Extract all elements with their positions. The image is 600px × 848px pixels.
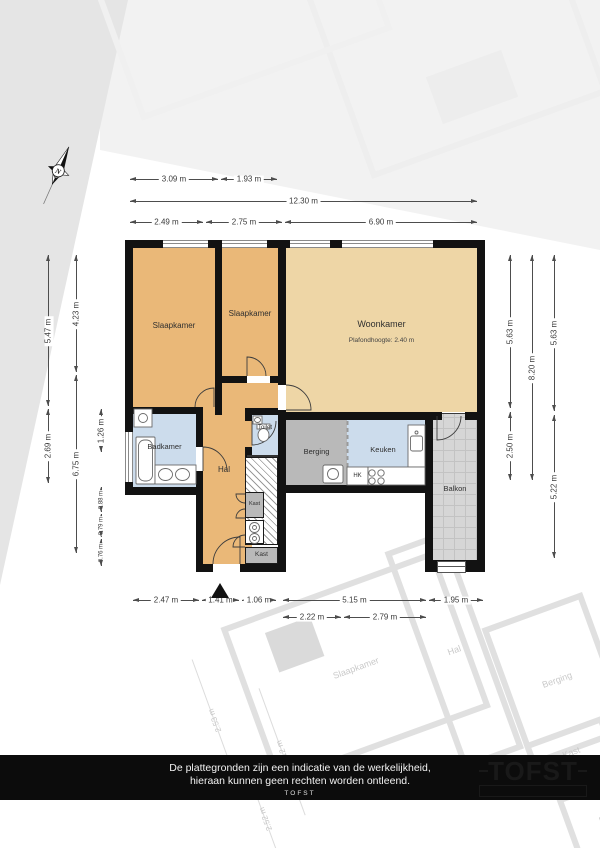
dim-right: 5.22 m — [554, 415, 555, 558]
label-balkon: Balkon — [433, 485, 477, 493]
label-slaapkamer-2: Slaapkamer — [222, 310, 278, 318]
floorplan-page: Slaapkamer Hal Berging Kast Badkamer 2.5… — [0, 0, 600, 848]
watermark-dash — [578, 770, 587, 772]
dim-bottom: 2.47 m — [133, 600, 199, 601]
bg-room-label: Hal — [428, 637, 480, 664]
tofst-watermark-logo: TOFST — [474, 755, 592, 800]
dim-bottom: 1.95 m — [429, 600, 483, 601]
dim-left: 2.69 m — [48, 409, 49, 483]
entrance-arrow-icon — [211, 583, 229, 598]
dim-top: 2.49 m — [130, 222, 203, 223]
label-hk: HK — [347, 473, 368, 479]
dim-top: 1.93 m — [221, 179, 277, 180]
dim-right: 8.20 m — [532, 255, 533, 480]
dim-top: 2.75 m — [206, 222, 282, 223]
dim-left: 1.26 m — [101, 409, 102, 452]
dim-left: 5.47 m — [48, 255, 49, 406]
dim-bottom: 2.79 m — [344, 617, 426, 618]
dim-left: 0.88 m — [101, 487, 102, 512]
dim-top: 6.90 m — [285, 222, 477, 223]
label-kast-a: Kast — [245, 502, 264, 508]
watermark-box — [479, 785, 587, 797]
label-hal: Hal — [203, 466, 245, 474]
dim-bottom: 1.41 m — [202, 600, 239, 601]
label-berging: Berging — [286, 448, 347, 456]
doors-and-fixtures — [120, 236, 488, 576]
dim-bottom: 1.06 m — [242, 600, 276, 601]
dim-right: 5.63 m — [554, 255, 555, 411]
dim-left: 0.76 m — [101, 539, 102, 566]
dim-top: 3.09 m — [130, 179, 218, 180]
label-keuken: Keuken — [347, 446, 419, 454]
label-plafondhoogte: Plafondhoogte: 2.40 m — [286, 338, 477, 345]
dim-left: 6.75 m — [76, 375, 77, 553]
watermark-dash — [479, 770, 488, 772]
floorplan: Slaapkamer Slaapkamer Woonkamer Plafondh… — [120, 236, 488, 576]
dim-bottom: 5.15 m — [283, 600, 426, 601]
label-slaapkamer-1: Slaapkamer — [133, 322, 215, 330]
dim-left: 0.79 m — [101, 514, 102, 537]
dim-bottom: 2.22 m — [283, 617, 341, 618]
bg-room-label: Berging — [511, 658, 600, 700]
dim-right: 2.50 m — [510, 412, 511, 480]
label-toilet: Toilet — [250, 425, 280, 431]
label-woonkamer: Woonkamer — [286, 320, 477, 329]
dim-left: 4.23 m — [76, 255, 77, 372]
label-kast-b: Kast — [245, 552, 278, 559]
watermark-text: TOFST — [488, 758, 578, 784]
label-badkamer: Badkamer — [133, 443, 196, 451]
footer-disclaimer-bar: De plattegronden zijn een indicatie van … — [0, 755, 600, 800]
dim-top: 12.30 m — [130, 201, 477, 202]
dim-right: 5.63 m — [510, 255, 511, 408]
